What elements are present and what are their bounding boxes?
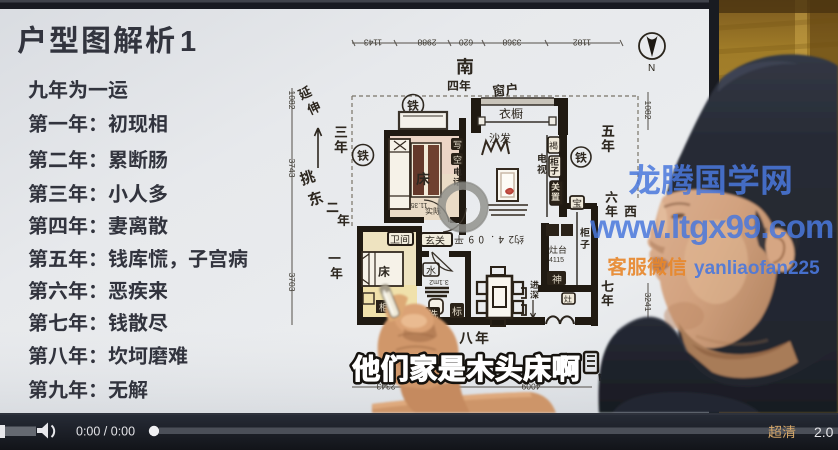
svg-text:1082: 1082	[643, 101, 653, 120]
svg-text:1182: 1182	[573, 38, 592, 48]
svg-text:3703: 3703	[287, 273, 297, 292]
svg-text:1082: 1082	[287, 91, 297, 110]
svg-text:620: 620	[459, 38, 473, 48]
svg-text:0:00 / 0:00: 0:00 / 0:00	[76, 425, 135, 439]
svg-text:N: N	[648, 63, 655, 74]
svg-text:3743: 3743	[287, 159, 297, 178]
svg-text:11.35: 11.35	[410, 201, 427, 208]
svg-text:3368: 3368	[502, 38, 521, 48]
svg-text:3241: 3241	[643, 293, 653, 312]
svg-text:1143: 1143	[364, 38, 383, 48]
svg-text:4115: 4115	[549, 257, 564, 264]
svg-text:3.1m2: 3.1m2	[429, 278, 449, 285]
svg-text:2988: 2988	[417, 38, 436, 48]
svg-text:www.ltgx99.com: www.ltgx99.com	[589, 208, 833, 245]
svg-text:yanliaofan225: yanliaofan225	[694, 258, 820, 279]
svg-text:2.0: 2.0	[814, 424, 834, 440]
svg-text:1: 1	[180, 26, 196, 58]
